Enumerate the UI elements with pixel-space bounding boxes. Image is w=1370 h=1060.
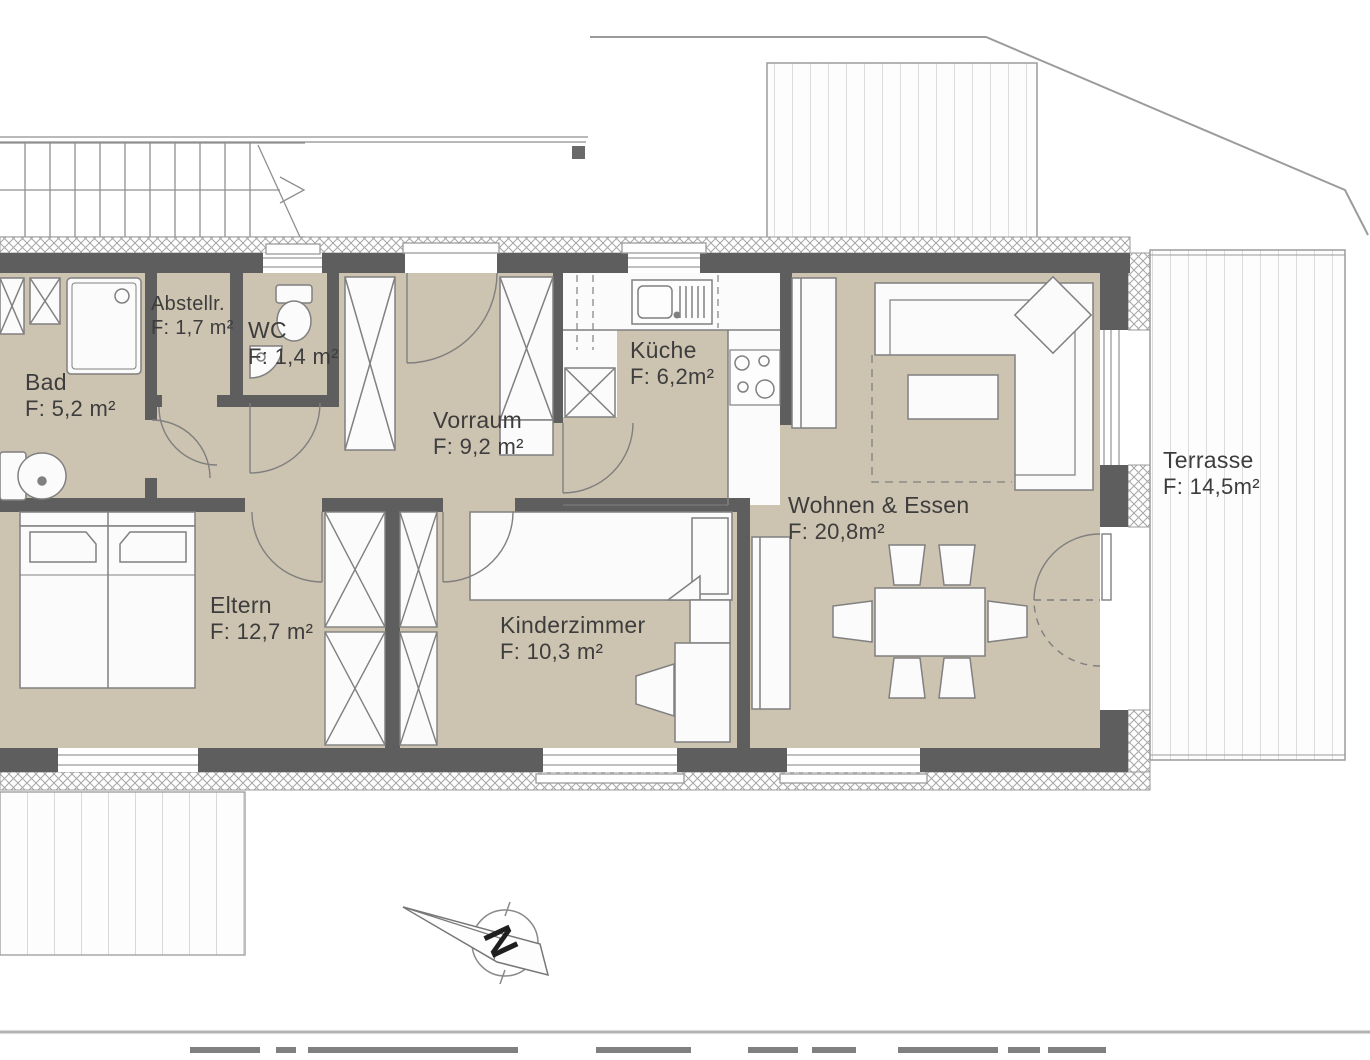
cropped-content-strip	[190, 1047, 1106, 1053]
room-area: F: 14,5m²	[1163, 474, 1260, 501]
floor-plan-canvas: N	[0, 0, 1370, 1060]
dining-table	[875, 588, 985, 656]
toilet-bad	[0, 452, 66, 500]
room-area: F: 12,7 m²	[210, 619, 313, 646]
kitchen-sink	[632, 280, 712, 324]
room-label-kinderzimmer: Kinderzimmer F: 10,3 m²	[500, 611, 645, 666]
railing-post	[572, 146, 585, 159]
stair-break-line	[258, 145, 300, 237]
staircase	[0, 137, 588, 237]
floor-plan-page: N Bad F: 5,2 m² Abstellr. F: 1,7 m² WC F…	[0, 0, 1370, 1060]
room-area: F: 20,8m²	[788, 519, 970, 546]
room-area: F: 1,7 m²	[151, 316, 234, 340]
room-name: Wohnen & Essen	[788, 491, 970, 519]
stove	[730, 350, 780, 405]
eltern-furniture	[20, 512, 195, 688]
room-name: Abstellr.	[151, 292, 234, 316]
room-label-bad: Bad F: 5,2 m²	[25, 368, 116, 423]
entrance-threshold	[403, 243, 499, 253]
sideboard	[752, 537, 790, 709]
room-area: F: 5,2 m²	[25, 396, 116, 423]
upper-deck	[767, 63, 1037, 240]
window-sill-wohnen	[780, 774, 927, 783]
lower-deck	[0, 792, 245, 955]
room-area: F: 9,2 m²	[433, 434, 524, 461]
room-label-terrasse: Terrasse F: 14,5m²	[1163, 446, 1260, 501]
drawer-unit	[690, 600, 730, 643]
room-name: Küche	[630, 336, 714, 364]
room-name: Kinderzimmer	[500, 611, 645, 639]
chair	[939, 545, 975, 585]
desk	[675, 643, 730, 742]
tall-cabinet	[792, 278, 836, 428]
page-bottom	[0, 1032, 1370, 1053]
north-arrow: N	[403, 902, 548, 984]
room-area: F: 1,4 m²	[248, 344, 339, 371]
window-sill-kitchen	[622, 243, 706, 253]
room-label-wohnen-essen: Wohnen & Essen F: 20,8m²	[788, 491, 970, 546]
window-sill-kinderzimmer	[536, 774, 684, 783]
chair	[889, 545, 925, 585]
room-name: Eltern	[210, 591, 313, 619]
terrasse-deck	[1150, 250, 1345, 760]
chair	[939, 658, 975, 698]
chair	[988, 601, 1027, 642]
stair-direction-arrow	[0, 177, 304, 203]
window-sill-wc	[266, 244, 320, 254]
chair	[889, 658, 925, 698]
room-label-vorraum: Vorraum F: 9,2 m²	[433, 406, 524, 461]
room-label-wc: WC F: 1,4 m²	[248, 316, 339, 371]
room-name: Vorraum	[433, 406, 524, 434]
room-label-eltern: Eltern F: 12,7 m²	[210, 591, 313, 646]
room-area: F: 10,3 m²	[500, 639, 645, 666]
room-name: Terrasse	[1163, 446, 1260, 474]
room-area: F: 6,2m²	[630, 364, 714, 391]
floor-corridor	[157, 407, 337, 498]
room-name: Bad	[25, 368, 116, 396]
coffee-table	[908, 375, 998, 419]
room-label-abstellraum: Abstellr. F: 1,7 m²	[151, 292, 234, 341]
chair	[833, 601, 872, 642]
shower	[67, 278, 141, 374]
room-label-kueche: Küche F: 6,2m²	[630, 336, 714, 391]
room-name: WC	[248, 316, 339, 344]
